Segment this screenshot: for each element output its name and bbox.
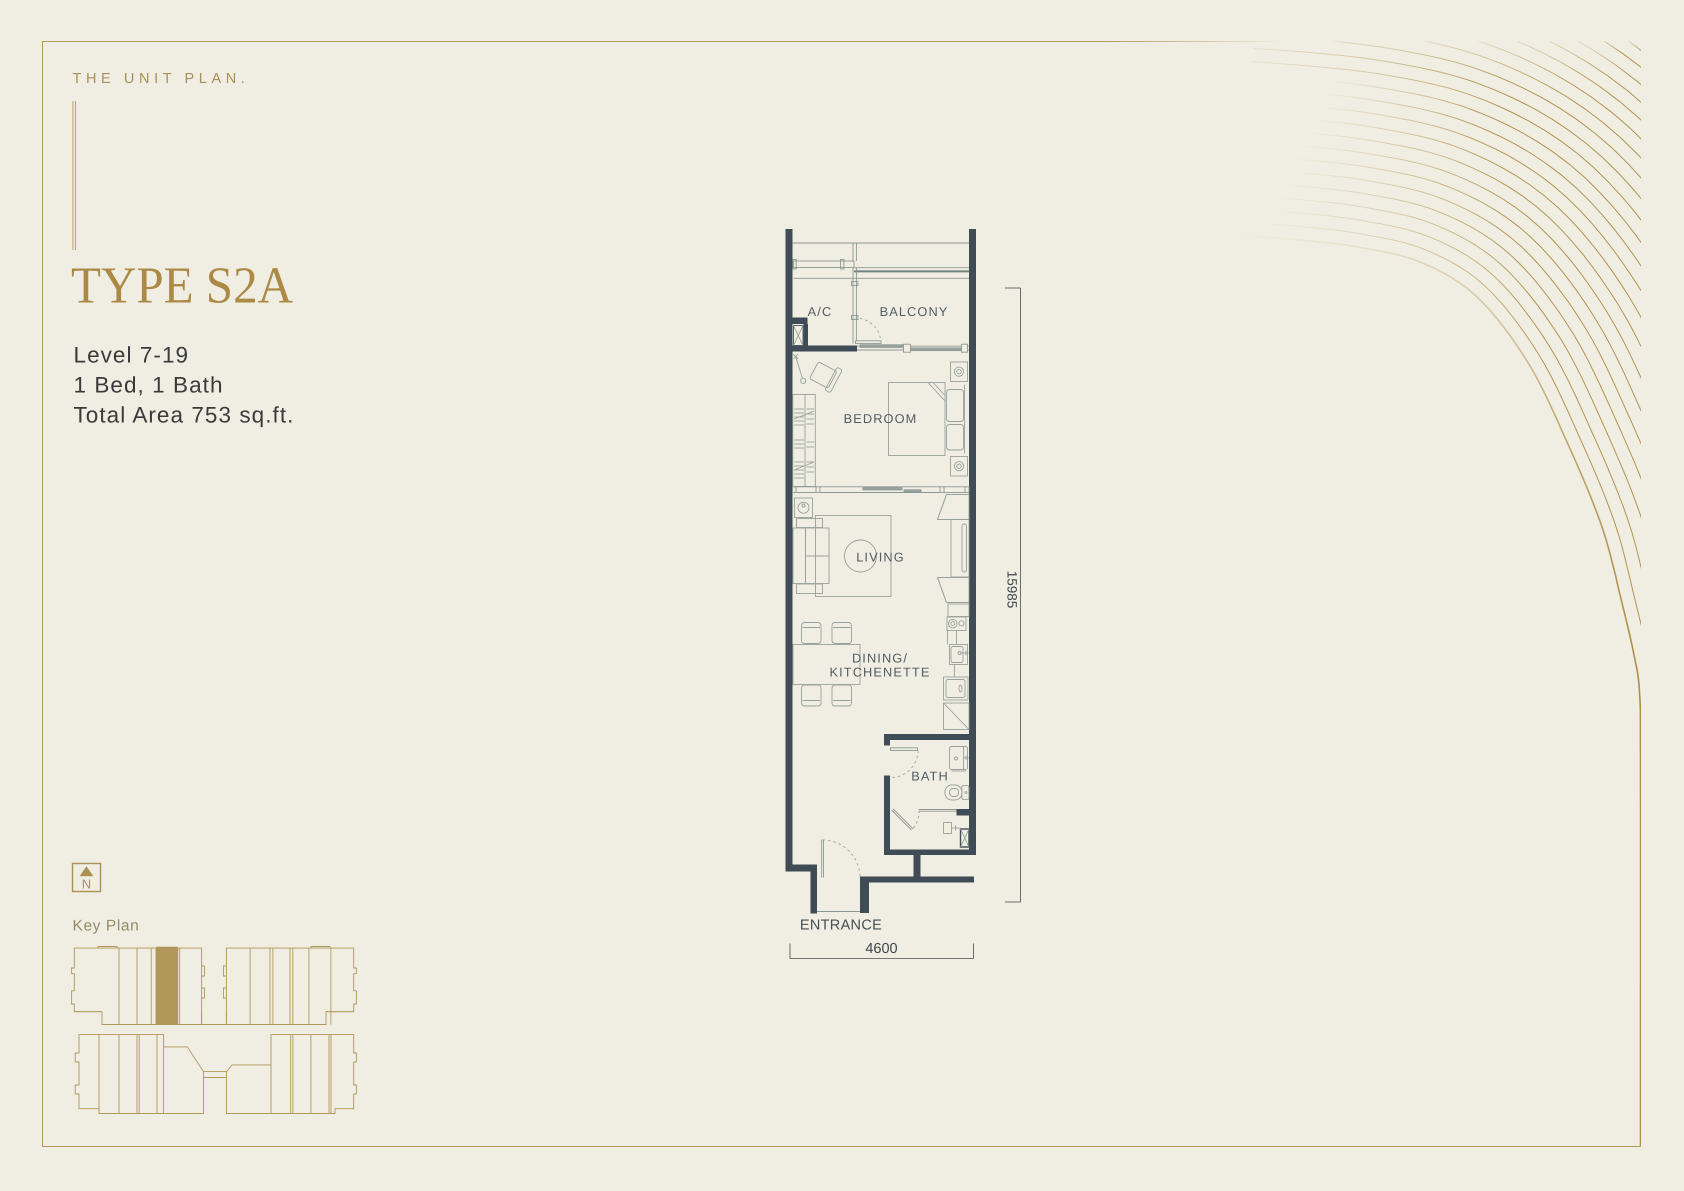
svg-text:DINING/: DINING/: [852, 651, 908, 666]
svg-text:ENTRANCE: ENTRANCE: [800, 918, 882, 934]
svg-text:N: N: [82, 876, 91, 891]
svg-text:Level 7-19: Level 7-19: [74, 343, 190, 368]
svg-text:BALCONY: BALCONY: [880, 304, 949, 319]
svg-text:BEDROOM: BEDROOM: [844, 411, 918, 426]
svg-text:Total Area 753 sq.ft.: Total Area 753 sq.ft.: [74, 403, 295, 428]
svg-text:BATH: BATH: [911, 769, 949, 784]
svg-text:THE UNIT PLAN.: THE UNIT PLAN.: [73, 71, 250, 87]
svg-text:4600: 4600: [865, 941, 897, 957]
svg-text:15985: 15985: [1005, 571, 1020, 609]
svg-text:A/C: A/C: [808, 304, 833, 319]
svg-text:LIVING: LIVING: [856, 550, 905, 565]
svg-text:Key Plan: Key Plan: [73, 918, 140, 935]
svg-text:1 Bed, 1 Bath: 1 Bed, 1 Bath: [74, 373, 224, 398]
svg-text:TYPE S2A: TYPE S2A: [71, 258, 293, 315]
svg-text:KITCHENETTE: KITCHENETTE: [830, 665, 931, 680]
